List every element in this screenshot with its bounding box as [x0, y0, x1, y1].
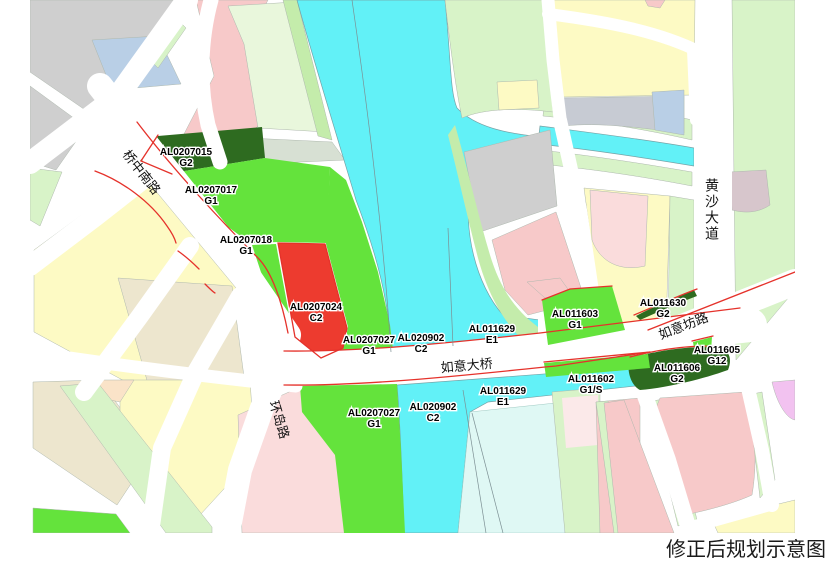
- label-AL011629N-class: E1: [486, 335, 499, 346]
- label-AL011606-class: G2: [670, 374, 684, 385]
- label-AL011629S-class: E1: [497, 397, 510, 408]
- map-canvas: AL0207015 G2 AL0207017 G1 AL0207018 G1 A…: [0, 0, 829, 564]
- map-caption: 修正后规划示意图: [666, 538, 826, 561]
- label-AL011602-code: AL011602: [568, 374, 615, 385]
- label-AL0207018-code: AL0207018: [220, 235, 273, 246]
- label-AL0207024-class: C2: [310, 313, 323, 324]
- label-AL011605-code: AL011605: [694, 345, 741, 356]
- label-AL011603-class: G1: [568, 320, 582, 331]
- label-AL0207017-class: G1: [204, 196, 218, 207]
- label-AL0207024-code: AL0207024: [290, 302, 343, 313]
- parcel-green-southwest-corner: [33, 508, 130, 533]
- label-AL020902S-code: AL020902: [410, 402, 457, 413]
- label-AL0207018-class: G1: [239, 246, 253, 257]
- label-AL011630-class: G2: [656, 309, 670, 320]
- parcel-palegreen-west-strip: [30, 168, 62, 226]
- label-AL0207017-code: AL0207017: [185, 185, 238, 196]
- parcel-steelblue-northeast: [652, 90, 684, 135]
- label-AL020902S-class: C2: [427, 413, 440, 424]
- label-AL0207027S-code: AL0207027: [348, 408, 401, 419]
- label-AL011602-class: G1/S: [580, 385, 603, 396]
- parcel-palepink-south: [562, 395, 598, 448]
- label-AL011630-code: AL011630: [640, 298, 687, 309]
- label-AL011606-code: AL011606: [654, 363, 701, 374]
- label-road-huangshadadao: 黄沙大道: [704, 177, 720, 242]
- label-AL011603-code: AL011603: [552, 309, 599, 320]
- label-AL020902N-code: AL020902: [398, 333, 445, 344]
- label-AL0207027N-class: G1: [362, 346, 376, 357]
- parcel-violet: [772, 380, 795, 420]
- base-parcels: [30, 0, 795, 533]
- label-AL0207027N-code: AL0207027: [343, 335, 396, 346]
- parcel-mauve: [730, 170, 770, 212]
- parcel-palegreen-east-strip: [668, 196, 694, 330]
- label-AL0207027S-class: G1: [367, 419, 381, 430]
- label-AL0207015-code: AL0207015: [160, 147, 213, 158]
- label-AL0207015-class: G2: [179, 158, 193, 169]
- label-AL011629N-code: AL011629: [469, 324, 516, 335]
- label-AL020902N-class: C2: [415, 344, 428, 355]
- label-AL011605-class: G12: [708, 356, 727, 367]
- road-ne-3: [693, 50, 696, 120]
- planning-map: AL0207015 G2 AL0207017 G1 AL0207018 G1 A…: [0, 0, 829, 564]
- label-AL011629S-code: AL011629: [480, 386, 527, 397]
- parcel-yellow-notch: [497, 80, 539, 110]
